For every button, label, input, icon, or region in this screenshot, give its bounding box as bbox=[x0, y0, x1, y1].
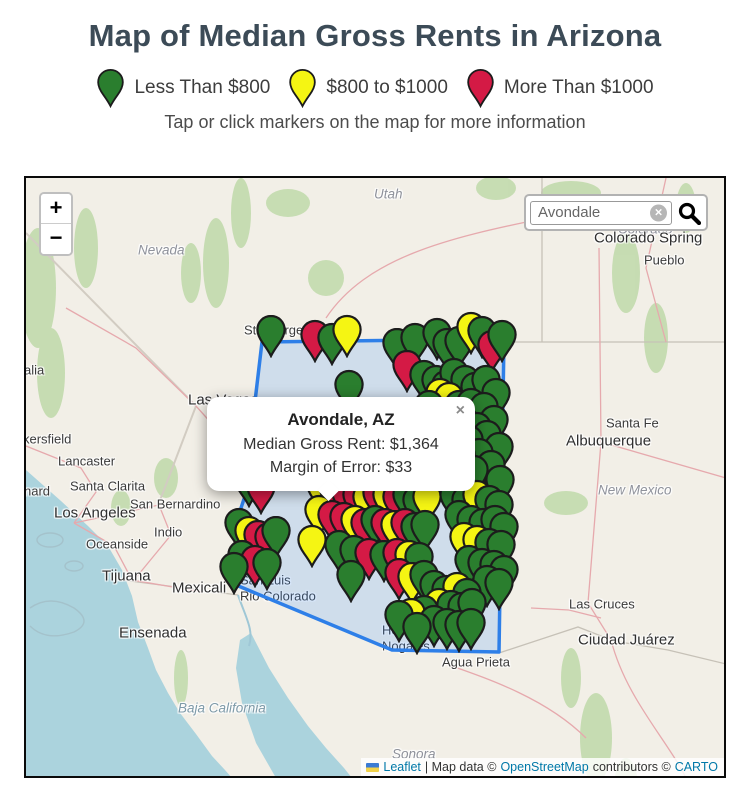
map-canvas[interactable]: UtahNevadaColoradoColorado SpringPuebloS… bbox=[26, 178, 724, 776]
zoom-out-button[interactable]: − bbox=[41, 224, 71, 254]
attribution-text: | Map data © bbox=[425, 760, 497, 774]
attribution-contributors: contributors © bbox=[593, 760, 671, 774]
map-marker[interactable] bbox=[455, 607, 487, 651]
map-marker[interactable] bbox=[331, 314, 363, 358]
clear-search-icon[interactable]: × bbox=[650, 204, 667, 221]
legend-label-1: $800 to $1000 bbox=[326, 77, 448, 99]
leaflet-map[interactable]: UtahNevadaColoradoColorado SpringPuebloS… bbox=[24, 176, 726, 778]
carto-link[interactable]: CARTO bbox=[675, 760, 718, 774]
popup-rent-line: Median Gross Rent: $1,364 bbox=[225, 433, 457, 456]
legend-item-1: $800 to $1000 bbox=[288, 68, 448, 108]
page: Map of Median Gross Rents in Arizona Les… bbox=[0, 0, 750, 805]
legend-label-2: More Than $1000 bbox=[504, 77, 654, 99]
legend-label-0: Less Than $800 bbox=[134, 77, 270, 99]
legend: Less Than $800$800 to $1000More Than $10… bbox=[0, 68, 750, 108]
zoom-in-button[interactable]: + bbox=[41, 194, 71, 224]
legend-marker-icon-1 bbox=[288, 68, 317, 108]
map-marker[interactable] bbox=[218, 551, 250, 595]
instruction-text: Tap or click markers on the map for more… bbox=[0, 112, 750, 133]
legend-marker-icon-2 bbox=[466, 68, 495, 108]
map-marker[interactable] bbox=[335, 559, 367, 603]
marker-popup: × Avondale, AZ Median Gross Rent: $1,364… bbox=[207, 397, 475, 491]
search-control: × bbox=[524, 194, 708, 231]
popup-close-icon[interactable]: × bbox=[456, 402, 465, 420]
page-title: Map of Median Gross Rents in Arizona bbox=[0, 0, 750, 54]
map-attribution: Leaflet | Map data © OpenStreetMap contr… bbox=[361, 758, 724, 776]
map-marker[interactable] bbox=[486, 319, 518, 363]
search-button[interactable] bbox=[675, 199, 702, 226]
zoom-control: + − bbox=[39, 192, 73, 256]
openstreetmap-link[interactable]: OpenStreetMap bbox=[500, 760, 588, 774]
ukraine-flag-icon bbox=[366, 763, 379, 772]
map-marker[interactable] bbox=[251, 547, 283, 591]
map-marker[interactable] bbox=[255, 314, 287, 358]
popup-title: Avondale, AZ bbox=[225, 410, 457, 430]
popup-error-line: Margin of Error: $33 bbox=[225, 456, 457, 479]
legend-item-0: Less Than $800 bbox=[96, 68, 270, 108]
legend-item-2: More Than $1000 bbox=[466, 68, 654, 108]
legend-marker-icon-0 bbox=[96, 68, 125, 108]
leaflet-link[interactable]: Leaflet bbox=[383, 760, 421, 774]
search-input-wrap: × bbox=[530, 201, 672, 225]
magnifier-icon bbox=[677, 201, 701, 225]
map-marker[interactable] bbox=[401, 611, 433, 655]
